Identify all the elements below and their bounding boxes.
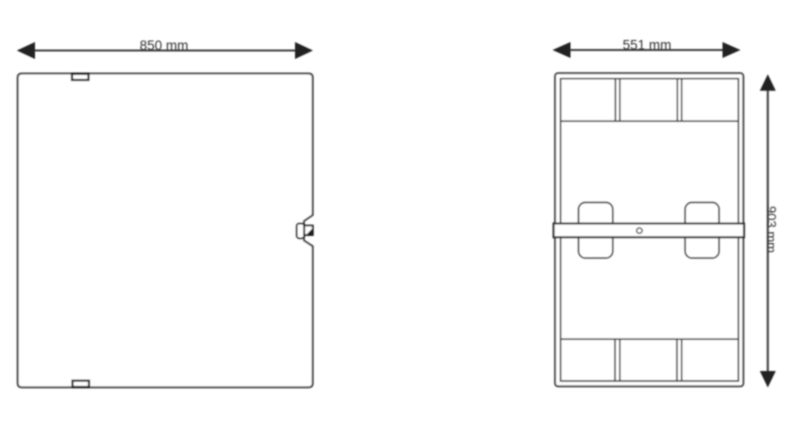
svg-text:551 mm: 551 mm bbox=[623, 37, 672, 52]
svg-text:850 mm: 850 mm bbox=[140, 38, 189, 53]
svg-text:903 mm: 903 mm bbox=[764, 206, 779, 253]
